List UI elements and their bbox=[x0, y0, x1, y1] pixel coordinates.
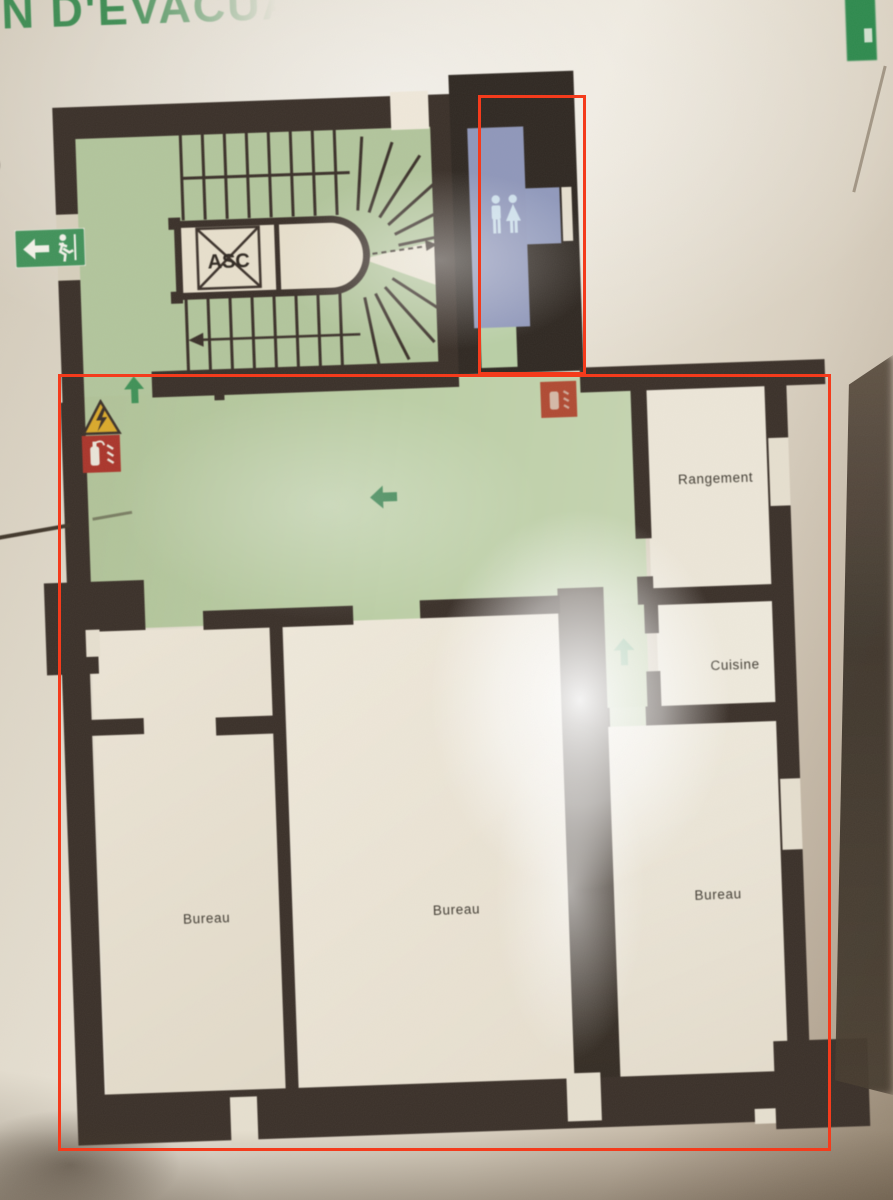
stair-left-wall-upper bbox=[53, 137, 78, 215]
side-letter-fragment: S bbox=[0, 129, 2, 188]
elevator-label: ASC bbox=[207, 250, 250, 273]
evacuation-plan-photo: AN D'ÉVACUATION S bbox=[0, 0, 893, 1200]
plan-title: AN D'ÉVACUATION bbox=[0, 0, 409, 41]
annotation-box-wc[interactable] bbox=[478, 95, 586, 375]
annotation-box-main-floor[interactable] bbox=[58, 374, 831, 1151]
capsule-cap-top bbox=[168, 217, 180, 229]
stairwell-block: ASC bbox=[52, 84, 463, 408]
green-frame-notch bbox=[864, 28, 872, 42]
elevator-box: ASC bbox=[197, 227, 261, 289]
top-doorway bbox=[390, 91, 429, 130]
capsule-cap-bottom bbox=[171, 291, 183, 303]
exit-sign bbox=[14, 228, 85, 268]
capsule-divider bbox=[276, 223, 278, 291]
green-frame-strip bbox=[844, 0, 877, 61]
